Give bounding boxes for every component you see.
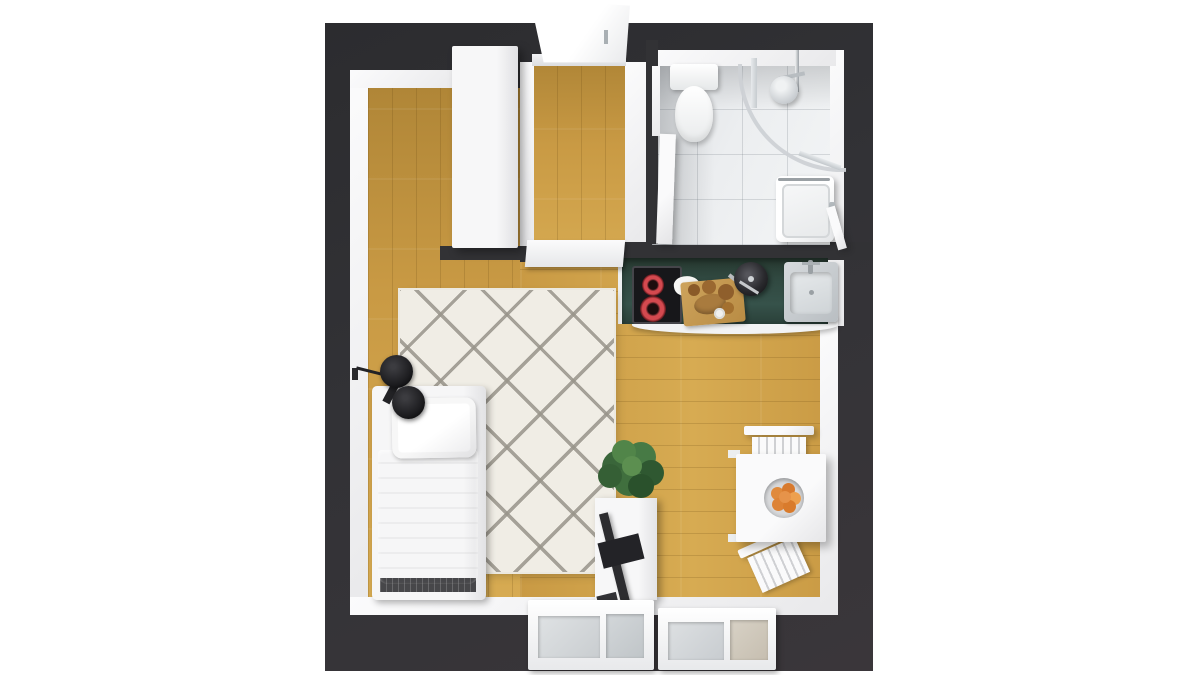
toilet [670, 64, 718, 144]
window-pane [538, 616, 600, 658]
washing-machine [776, 176, 834, 242]
washing-machine-panel [778, 178, 830, 181]
drain [809, 290, 814, 295]
faucet-bar [802, 262, 820, 265]
chair-backrest [744, 426, 814, 435]
burner-large [640, 296, 666, 322]
cooktop [632, 266, 678, 320]
entry-door-handle [604, 30, 608, 44]
cookie [702, 280, 716, 294]
floor-hallway [533, 62, 625, 270]
washing-machine-door [782, 184, 830, 238]
shower-glass-panel [751, 58, 757, 108]
window [528, 600, 654, 670]
lamp-shade-upper [380, 355, 413, 388]
small-cup [714, 308, 725, 319]
cooking-pot [726, 260, 768, 300]
hallway-wall-right [625, 62, 646, 244]
shower-head [770, 76, 798, 104]
floorplan-3d-render: 3D top-view floor plan render of a studi… [0, 0, 1200, 675]
cookie [688, 284, 700, 296]
bathroom-left-wall-face [652, 66, 660, 136]
wall-band-left [350, 70, 368, 615]
kitchen-sink [784, 260, 838, 322]
lamp-shade-lower [392, 386, 425, 419]
toilet-bowl [675, 86, 713, 142]
window-pane [730, 620, 768, 660]
burner-small [642, 274, 664, 296]
plant-foliage [628, 474, 654, 498]
window-pane [668, 622, 724, 660]
window [658, 608, 776, 670]
wall-lamp [350, 350, 430, 420]
window-pane [606, 614, 644, 658]
plant-foliage [622, 456, 642, 476]
entry-door [528, 0, 632, 63]
duvet [378, 450, 478, 584]
potted-plant [598, 440, 668, 502]
fruit-bowl [764, 478, 804, 518]
pot-knob [748, 276, 754, 282]
wall-band-top-left [350, 70, 462, 88]
plant-foliage [598, 464, 622, 488]
interior-door-open [525, 240, 625, 267]
partition-wall [440, 246, 528, 260]
wardrobe [452, 46, 518, 248]
orange [779, 491, 791, 503]
hallway-wall-left [520, 62, 534, 248]
